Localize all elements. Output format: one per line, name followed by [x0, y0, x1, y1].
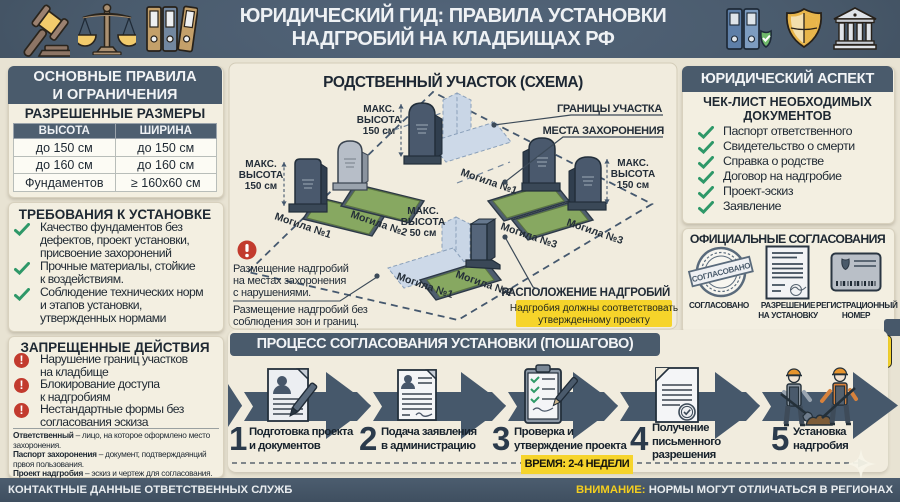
- svg-text:Размещение надгробий без: Размещение надгробий без: [233, 304, 368, 316]
- svg-text:утвержденному проекту: утвержденному проекту: [538, 315, 650, 326]
- svg-text:Размещение надгробий: Размещение надгробий: [233, 263, 349, 275]
- svg-text:50 см: 50 см: [410, 228, 437, 239]
- svg-text:МАКС.: МАКС.: [407, 206, 439, 217]
- svg-text:ВЫСОТА: ВЫСОТА: [611, 169, 655, 180]
- svg-text:МЕСТА ЗАХОРОНЕНИЯ: МЕСТА ЗАХОРОНЕНИЯ: [543, 125, 665, 137]
- svg-text:РОДСТВЕННЫЙ УЧАСТОК (СХЕМА): РОДСТВЕННЫЙ УЧАСТОК (СХЕМА): [323, 73, 583, 91]
- svg-text:ГРАНИЦЫ УЧАСТКА: ГРАНИЦЫ УЧАСТКА: [557, 103, 662, 115]
- svg-text:ВЫСОТА: ВЫСОТА: [357, 115, 401, 126]
- svg-text:МАКС.: МАКС.: [245, 159, 277, 170]
- svg-text:150 см: 150 см: [245, 181, 277, 192]
- svg-text:150 см: 150 см: [363, 126, 395, 137]
- svg-text:с нарушениями.: с нарушениями.: [233, 287, 311, 299]
- svg-text:соблюдения зон и границ.: соблюдения зон и границ.: [233, 316, 359, 328]
- svg-text:ВЫСОТА: ВЫСОТА: [239, 170, 283, 181]
- svg-text:150 см: 150 см: [617, 180, 649, 191]
- svg-text:РАСПОЛОЖЕНИЕ НАДГРОБИЙ: РАСПОЛОЖЕНИЕ НАДГРОБИЙ: [501, 286, 670, 299]
- svg-text:МАКС.: МАКС.: [617, 158, 649, 169]
- svg-text:на местах захоронения: на местах захоронения: [233, 275, 346, 287]
- svg-text:Надгробия должны соответствова: Надгробия должны соответствовать: [510, 302, 678, 314]
- svg-text:МАКС.: МАКС.: [363, 104, 395, 115]
